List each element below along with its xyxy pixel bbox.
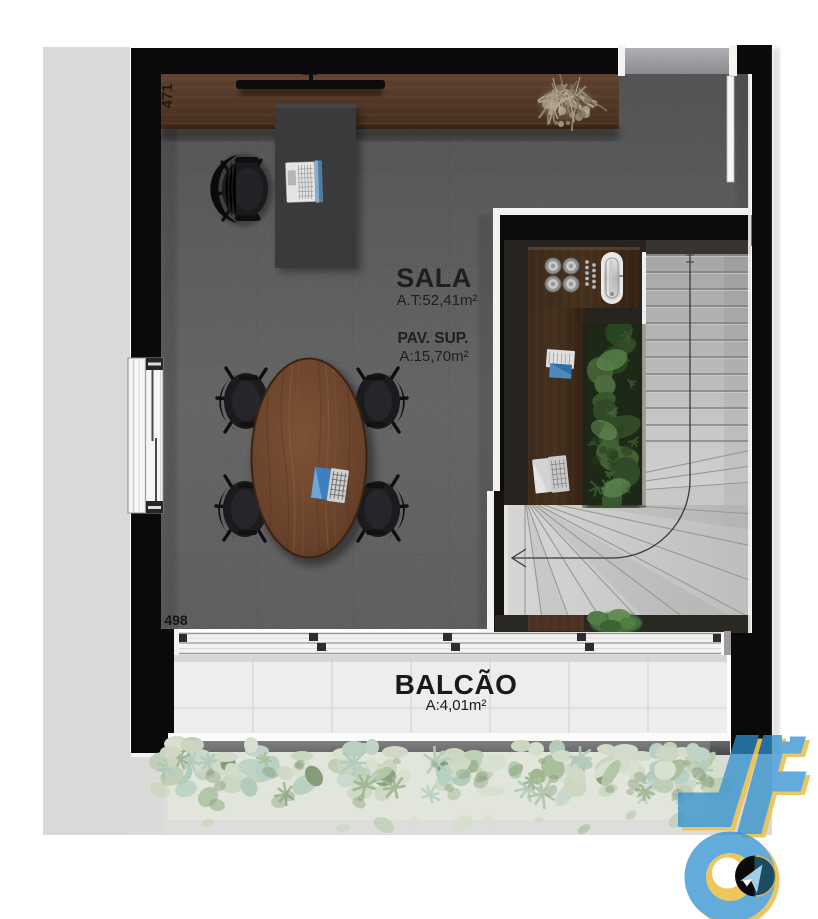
svg-text:471: 471: [159, 83, 176, 108]
svg-text:BALCÃO: BALCÃO: [395, 669, 518, 700]
svg-text:A:15,70m²: A:15,70m²: [399, 348, 468, 365]
svg-text:A.T:52,41m²: A.T:52,41m²: [397, 292, 478, 309]
svg-text:SALA: SALA: [396, 263, 472, 293]
svg-text:A:4,01m²: A:4,01m²: [426, 697, 487, 714]
svg-text:PAV. SUP.: PAV. SUP.: [398, 330, 469, 347]
svg-text:498: 498: [164, 612, 188, 628]
